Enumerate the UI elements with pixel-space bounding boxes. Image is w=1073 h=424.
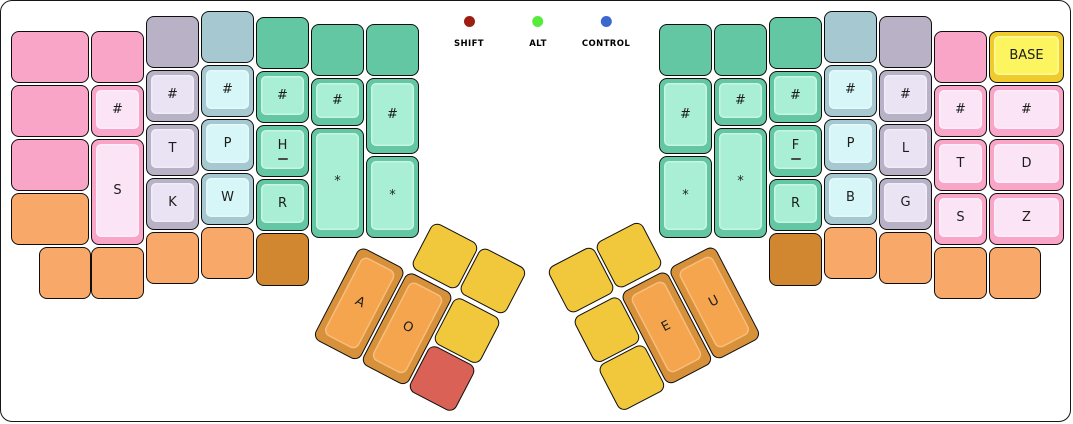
key-label: S <box>113 184 121 198</box>
keycap-top: # <box>261 76 304 115</box>
key-label: H <box>278 139 288 153</box>
key-hash[interactable]: # <box>311 78 364 126</box>
key-blank[interactable] <box>989 247 1041 299</box>
key-b[interactable]: B <box>824 173 877 225</box>
key-blank[interactable] <box>879 232 932 284</box>
key-hash[interactable]: # <box>769 71 822 123</box>
key-blank[interactable] <box>934 31 987 83</box>
key-hash[interactable]: # <box>879 70 932 122</box>
key-label: # <box>332 94 343 108</box>
key-blank[interactable] <box>311 24 364 76</box>
key-blank[interactable] <box>91 247 144 299</box>
keycap-top: B <box>829 178 872 217</box>
keycap-top: # <box>719 83 762 118</box>
key-label: F <box>792 139 799 153</box>
key-blank[interactable] <box>146 232 199 284</box>
key-hash[interactable]: # <box>824 65 877 117</box>
shift-indicator-label: SHIFT <box>454 39 484 49</box>
keycap-top: S <box>96 144 139 237</box>
key-blank[interactable] <box>256 17 309 69</box>
keycap-top: # <box>96 90 139 129</box>
key-label: # <box>680 108 691 122</box>
key-hash[interactable]: # <box>201 65 254 117</box>
alt-indicator-label: ALT <box>529 39 547 49</box>
key-blank[interactable] <box>879 16 932 68</box>
key-hash[interactable]: # <box>256 71 309 123</box>
key-blank[interactable] <box>11 31 89 83</box>
key-label: G <box>900 196 910 210</box>
key-label: # <box>900 88 911 102</box>
keycap-top: # <box>316 83 359 118</box>
key-label: K <box>168 196 177 210</box>
key-hash[interactable]: # <box>146 70 199 122</box>
key-p[interactable]: P <box>824 119 877 171</box>
key-hash[interactable]: # <box>91 85 144 137</box>
key-label: R <box>791 197 800 211</box>
keycap-top: * <box>316 133 359 230</box>
key-blank[interactable] <box>366 24 419 76</box>
key-star[interactable]: * <box>714 128 767 238</box>
key-label: B <box>846 191 855 205</box>
key-label: S <box>956 211 964 225</box>
key-label: * <box>334 175 341 189</box>
keycap-top: # <box>151 75 194 114</box>
control-indicator-dot <box>601 16 612 27</box>
key-sub-underscore <box>791 158 801 160</box>
key-blank[interactable] <box>824 11 877 63</box>
key-label: U <box>707 294 722 311</box>
keycap-top: R <box>774 184 817 223</box>
key-p[interactable]: P <box>201 119 254 171</box>
key-blank[interactable] <box>146 16 199 68</box>
keycap-top: # <box>884 75 927 114</box>
keycap-top: D <box>994 144 1059 183</box>
keycap-top: # <box>664 83 707 146</box>
key-t[interactable]: T <box>146 124 199 176</box>
keycap-top: H <box>261 130 304 169</box>
key-blank[interactable] <box>256 233 309 286</box>
key-k[interactable]: K <box>146 178 199 230</box>
key-star[interactable]: * <box>311 128 364 238</box>
key-label: BASE <box>1009 49 1043 63</box>
keycap-top: # <box>371 83 414 146</box>
keycap-top: F <box>774 130 817 169</box>
keycap-top: # <box>939 90 982 129</box>
key-label: * <box>737 175 744 189</box>
key-label: Z <box>1022 211 1031 225</box>
key-z[interactable]: Z <box>989 193 1064 245</box>
key-blank[interactable] <box>201 11 254 63</box>
key-blank[interactable] <box>769 17 822 69</box>
keycap-top: T <box>939 144 982 183</box>
keycap-top: # <box>206 70 249 109</box>
keycap-top: W <box>206 178 249 217</box>
key-s[interactable]: S <box>934 193 987 245</box>
key-label: T <box>957 157 965 171</box>
key-blank[interactable] <box>39 247 91 299</box>
key-label: O <box>400 319 416 336</box>
key-f[interactable]: F <box>769 125 822 177</box>
keycap-top: * <box>719 133 762 230</box>
key-hash[interactable]: # <box>934 85 987 137</box>
key-blank[interactable] <box>11 139 89 191</box>
keymap-canvas: SHIFT ALT CONTROL #S#TK#PW#HR#*#* #*#*#F… <box>0 0 1071 422</box>
key-label: A <box>352 295 366 312</box>
key-g[interactable]: G <box>879 178 932 230</box>
keycap-top: S <box>939 198 982 237</box>
key-r[interactable]: R <box>256 179 309 231</box>
key-hash[interactable]: # <box>366 78 419 154</box>
key-label: D <box>1021 157 1031 171</box>
key-blank[interactable] <box>714 24 767 76</box>
key-label: # <box>277 89 288 103</box>
key-blank[interactable] <box>11 85 89 137</box>
key-base[interactable]: BASE <box>989 31 1064 83</box>
keycap-top: # <box>994 90 1059 129</box>
key-label: # <box>955 103 966 117</box>
keycap-top: G <box>884 183 927 222</box>
key-label: T <box>169 142 177 156</box>
key-hash[interactable]: # <box>714 78 767 126</box>
key-label: # <box>112 103 123 117</box>
key-h[interactable]: H <box>256 125 309 177</box>
key-label: # <box>222 83 233 97</box>
key-label: P <box>847 137 855 151</box>
key-label: E <box>659 319 673 335</box>
control-indicator-label: CONTROL <box>582 39 630 49</box>
keycap-top: T <box>151 129 194 168</box>
key-label: # <box>790 89 801 103</box>
key-label: # <box>1021 103 1032 117</box>
keycap-top: P <box>206 124 249 163</box>
keycap-top: P <box>829 124 872 163</box>
key-hash[interactable]: # <box>659 78 712 154</box>
key-label: # <box>735 94 746 108</box>
key-blank[interactable] <box>91 31 144 83</box>
key-hash[interactable]: # <box>989 85 1064 137</box>
key-label: # <box>387 108 398 122</box>
key-blank[interactable] <box>769 233 822 286</box>
indicator-shift[interactable]: SHIFT <box>454 16 484 49</box>
key-r[interactable]: R <box>769 179 822 231</box>
keycap-top: # <box>829 70 872 109</box>
key-t[interactable]: T <box>934 139 987 191</box>
key-blank[interactable] <box>934 247 987 299</box>
key-d[interactable]: D <box>989 139 1064 191</box>
key-sub-underscore <box>278 158 288 160</box>
keycap-top: L <box>884 129 927 168</box>
indicator-control[interactable]: CONTROL <box>582 16 630 49</box>
key-label: W <box>221 191 234 205</box>
key-blank[interactable] <box>824 227 877 279</box>
key-blank[interactable] <box>201 227 254 279</box>
keycap-top: R <box>261 184 304 223</box>
shift-indicator-dot <box>463 16 474 27</box>
key-label: P <box>224 137 232 151</box>
alt-indicator-dot <box>533 16 544 27</box>
key-label: # <box>167 88 178 102</box>
keycap-top: BASE <box>994 36 1059 75</box>
key-blank[interactable] <box>11 193 89 245</box>
key-label: R <box>278 197 287 211</box>
key-w[interactable]: W <box>201 173 254 225</box>
keycap-top: Z <box>994 198 1059 237</box>
key-l[interactable]: L <box>879 124 932 176</box>
indicator-alt[interactable]: ALT <box>529 16 547 49</box>
key-blank[interactable] <box>659 24 712 76</box>
keycap-top: K <box>151 183 194 222</box>
key-label: L <box>902 142 909 156</box>
key-s[interactable]: S <box>91 139 144 245</box>
keycap-top: # <box>774 76 817 115</box>
key-label: # <box>845 83 856 97</box>
